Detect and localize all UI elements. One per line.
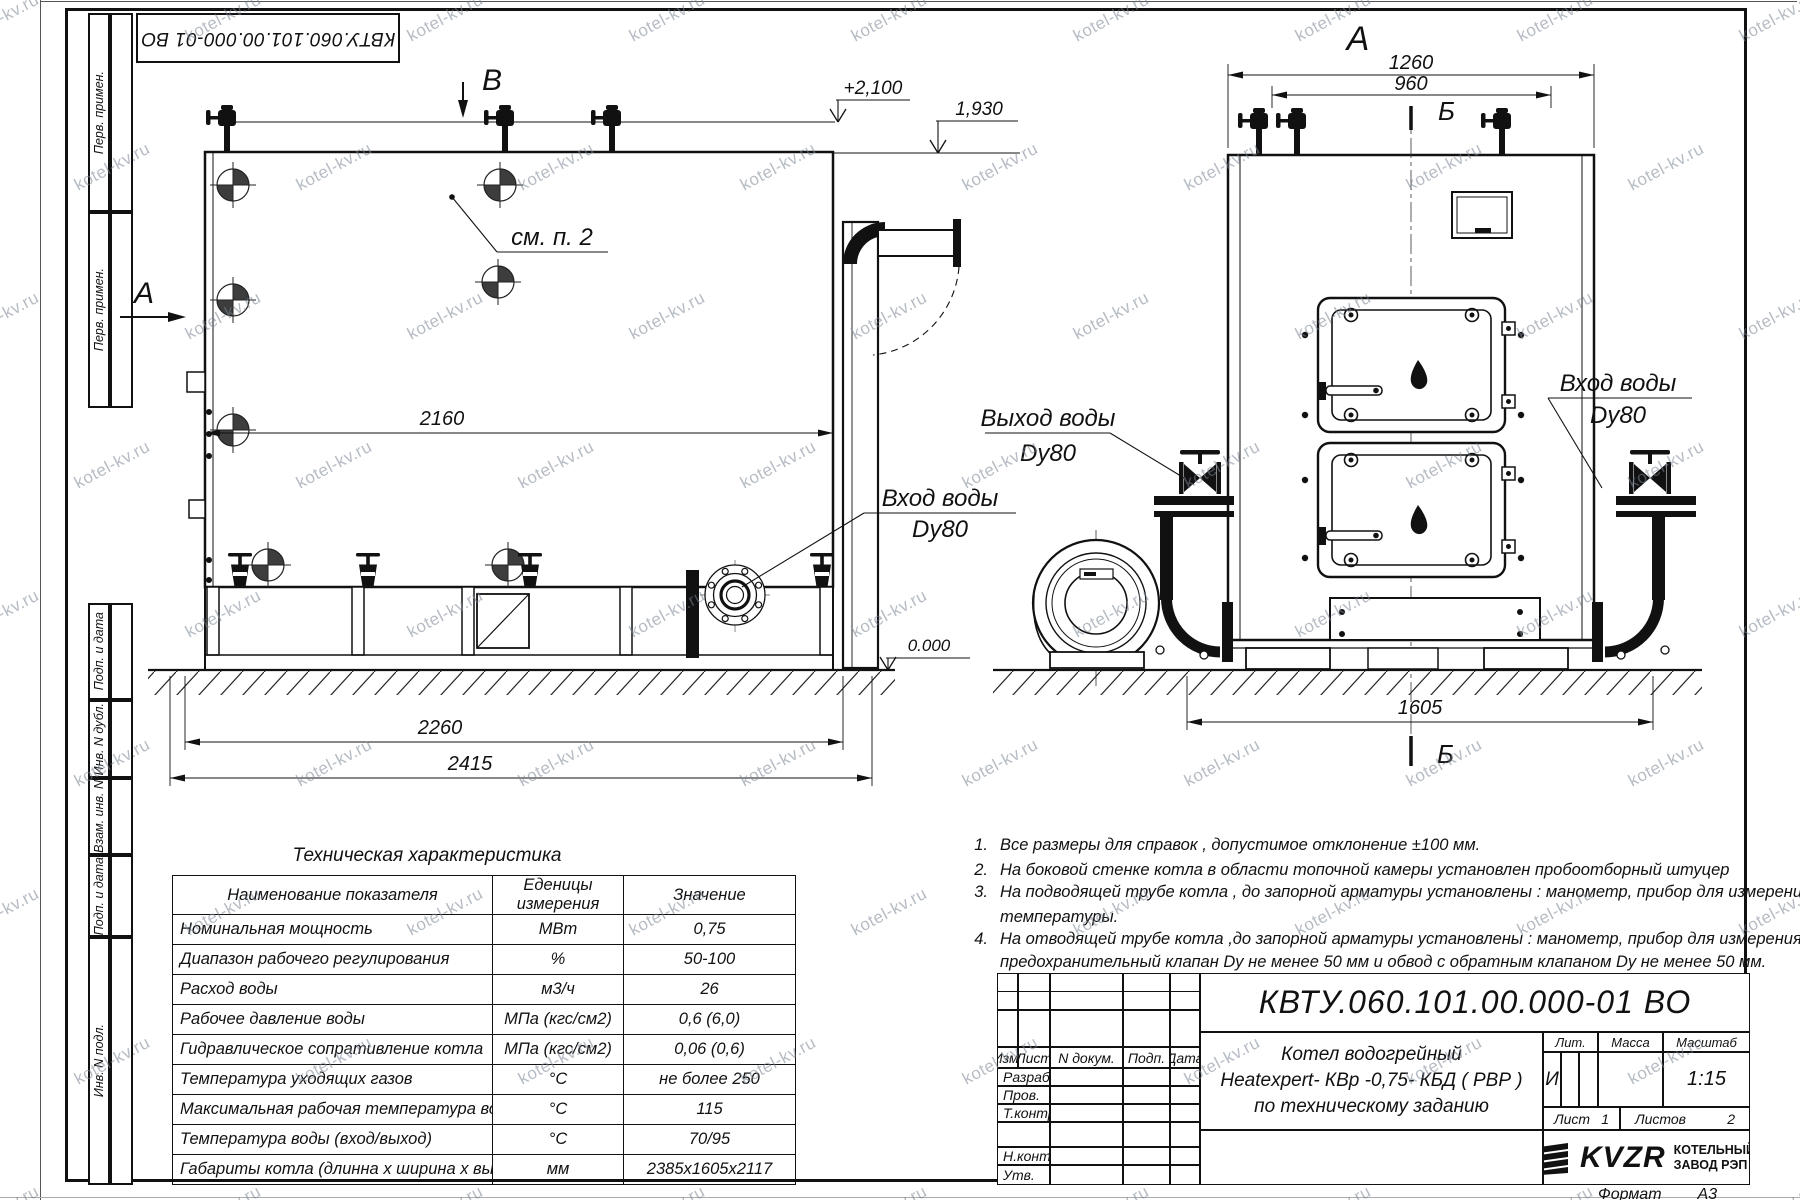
dim-text: 1605 [1398,697,1443,719]
pipe-label: Вход воды [882,485,999,512]
sheets-cell: Листов 2 [1620,1107,1750,1130]
pipe-size-label: Dy80 [912,516,969,543]
format-value: А3 [1698,1186,1718,1200]
tb-row-prov: Пров. [997,1086,1050,1104]
pipe-size-label: Dy80 [1590,402,1647,429]
valve-icon [591,105,621,152]
valve-icon [1481,108,1511,155]
spec-name-cell: Гидравлическое сопративление котла [173,1035,493,1065]
elev-text: 1,930 [955,99,1003,120]
spec-unit-cell: °С [493,1095,624,1125]
spec-name-cell: Номинальная мощность [173,915,493,945]
tb-col-ndocum: N докум. [1050,1047,1123,1068]
section-marker-a-left: А [120,277,186,322]
outlet-pipe-assembly [1154,450,1234,662]
sheet-value: 1 [1601,1111,1609,1127]
chimney [843,219,961,668]
dim-text: 1260 [1389,52,1434,74]
note-number: 3. [960,883,988,902]
dim-text: 960 [1394,73,1427,95]
drawing-title-line2: Heatexpert- КВр -0,75- КБД ( РВР ) [1220,1068,1522,1094]
section-marker-b-top: B [458,64,502,118]
tb-col-izm: Изм. [997,1047,1018,1068]
spec-unit-cell: МПа (кгс/см2) [493,1035,624,1065]
spec-value-cell: 115 [624,1095,796,1125]
note-line: 3.На подводящей трубе котла , до запорно… [960,883,1760,902]
elev-text: 0.000 [908,636,951,655]
note-text: температуры. [1000,908,1118,926]
base-feet [1228,648,1594,669]
front-view: А 1260 960 Б [981,20,1702,769]
spec-col1-header: Наименование показателя [173,876,493,915]
table-row: Габариты котла (длинна х ширина х высота… [173,1155,796,1185]
dim-text: 2160 [419,408,465,430]
note-line: температуры. [960,908,1760,927]
note-number: 2. [960,861,988,880]
sheet-cell: Лист 1 [1543,1107,1620,1130]
note-number: 1. [960,836,988,855]
valve-icon [1238,108,1268,155]
note-text: На боковой стенке котла в области топочн… [1000,861,1729,879]
spec-unit-cell: мм [493,1155,624,1185]
inlet-pipe-assembly [1592,450,1696,662]
spec-table-title: Техническая характеристика [212,845,642,867]
callout-text: см. п. 2 [511,224,593,251]
section-letter: Б [1438,96,1455,126]
scale-header: Масштаб [1663,1032,1750,1052]
spec-value-cell: 26 [624,975,796,1005]
spec-unit-cell: % [493,945,624,975]
pipe-label: Вход воды [1560,370,1677,397]
valve-icon [1276,108,1306,155]
note-line: 2.На боковой стенке котла в области топо… [960,861,1760,880]
spec-name-cell: Диапазон рабочего регулирования [173,945,493,975]
tb-row-tkontr: Т.контр. [997,1104,1050,1122]
spec-unit-cell: м3/ч [493,975,624,1005]
section-marker-b-upper: Б [1411,96,1455,130]
tb-col-list: Лист [1018,1047,1050,1068]
spec-value-cell: 70/95 [624,1125,796,1155]
note-text: Все размеры для справок , допустимое отк… [1000,836,1480,854]
tb-row-empty [997,1122,1050,1147]
company-line2: ЗАВОД РЭП [1674,1158,1748,1172]
lit-header: Лит. [1543,1032,1598,1052]
sheet-label: Лист [1554,1111,1590,1127]
dim-960: 960 [1272,73,1551,108]
mass-header: Масса [1598,1032,1663,1052]
mass-value [1598,1052,1663,1107]
doc-number: КВТУ.060.101.00.000-01 ВО [1200,973,1750,1032]
sheets-value: 2 [1727,1111,1735,1127]
note-line: предохранительный клапан Dу не менее 50 … [960,953,1760,972]
spec-unit-cell: МПа (кгс/см2) [493,1005,624,1035]
spec-name-cell: Температура уходящих газов [173,1065,493,1095]
spec-unit-cell: МВт [493,915,624,945]
table-row: Расход водым3/ч26 [173,975,796,1005]
fan-blower [1033,530,1159,690]
spec-value-cell: 50-100 [624,945,796,975]
spec-unit-cell: °С [493,1125,624,1155]
company-line1: КОТЕЛЬНЫЙ [1674,1143,1750,1157]
valve-icon [484,105,514,152]
spec-name-cell: Температура воды (вход/выход) [173,1125,493,1155]
table-row: Диапазон рабочего регулирования%50-100 [173,945,796,975]
title-block: Изм. Лист N докум. Подп. Дата Разраб. Пр… [997,973,1750,1185]
spec-col3-header: Значение [624,876,796,915]
dim-text: 2415 [447,753,493,775]
scale-value: 1:15 [1663,1052,1750,1107]
company-name: КОТЕЛЬНЫЙ ЗАВОД РЭП [1674,1143,1750,1173]
pipe-label: Выход воды [981,405,1116,432]
lit-value: И [1543,1052,1561,1107]
drawing-title: Котел водогрейный Heatexpert- КВр -0,75-… [1200,1032,1543,1130]
side-view: B А см. п. 2 2160 [120,64,1020,786]
elev-mark-1930: 1,930 [833,99,1020,153]
drawing-sheet: КВТУ.060.101.00.000-01 ВО Перв. примен. … [0,0,1800,1200]
section-letter: Б [1437,739,1454,769]
tb-col-data: Дата [1170,1047,1200,1068]
tb-row-utv: Утв. [997,1165,1050,1185]
spec-name-cell: Габариты котла (длинна х ширина х высота… [173,1155,493,1185]
format-label: Формат [1598,1186,1662,1200]
note-text: На отводящей трубе котла ,до запорной ар… [1000,930,1800,948]
ground-hatch-side [148,671,895,695]
tb-row-nkontr: Н.контр. [997,1147,1050,1165]
spec-unit-cell: °С [493,1065,624,1095]
outlet-label: Выход воды Dy80 [981,405,1194,484]
kvzr-logo-icon [1543,1141,1572,1175]
spec-name-cell: Расход воды [173,975,493,1005]
sheets-label: Листов [1635,1111,1686,1127]
nameplate [1452,192,1512,238]
elev-mark-2100: +2,100 [233,78,910,122]
table-row: Гидравлическое сопративление котлаМПа (к… [173,1035,796,1065]
table-row: Температура уходящих газов°Сне более 250 [173,1065,796,1095]
spec-col2-header: Еденицы измерения [493,876,624,915]
table-row: Температура воды (вход/выход)°С70/95 [173,1125,796,1155]
ground-hatch-front [993,671,1702,695]
spec-col2-header-line2: измерения [497,895,619,914]
furnace-door-upper [1318,298,1515,432]
pipe-size-label: Dy80 [1020,440,1077,467]
drawing-title-line3: по техническому заданию [1254,1094,1489,1120]
furnace-door-lower [1318,443,1515,577]
spec-value-cell: не более 250 [624,1065,796,1095]
spec-name-cell: Максимальная рабочая температура воды [173,1095,493,1125]
table-row: Номинальная мощностьМВт0,75 [173,915,796,945]
logo-cell: KVZR КОТЕЛЬНЫЙ ЗАВОД РЭП [1543,1130,1750,1185]
note-number: 4. [960,930,988,949]
section-marker-b-lower: Б [1411,736,1454,769]
spec-name-cell: Рабочее давление воды [173,1005,493,1035]
spec-value-cell: 0,6 (6,0) [624,1005,796,1035]
spec-col2-header-line1: Еденицы [497,876,619,895]
boiler-body-side [205,152,833,587]
spec-value-cell: 0,75 [624,915,796,945]
section-letter: B [482,64,502,97]
table-row: Рабочее давление водыМПа (кгс/см2)0,6 (6… [173,1005,796,1035]
dim-text: 2260 [417,717,463,739]
view-label-a: А [1345,20,1370,58]
tb-col-podp: Подп. [1123,1047,1170,1068]
note-line: 1.Все размеры для справок , допустимое о… [960,836,1760,855]
logo-text: KVZR [1580,1141,1666,1175]
note-line: 4.На отводящей трубе котла ,до запорной … [960,930,1760,949]
note-text: На подводящей трубе котла , до запорной … [1000,883,1800,901]
valve-icon [206,105,236,152]
spec-value-cell: 2385х1605х2117 [624,1155,796,1185]
format-note: Формат А3 [1598,1186,1788,1200]
elev-mark-0000: 0.000 [880,636,970,670]
tb-row-razrab: Разраб. [997,1068,1050,1086]
table-row: Максимальная рабочая температура воды°С1… [173,1095,796,1125]
elev-text: +2,100 [844,78,903,99]
note-text: предохранительный клапан Dу не менее 50 … [1000,953,1766,971]
section-letter: А [132,277,154,310]
drawing-title-line1: Котел водогрейный [1281,1042,1462,1068]
spec-value-cell: 0,06 (0,6) [624,1035,796,1065]
ash-box [1330,598,1540,640]
